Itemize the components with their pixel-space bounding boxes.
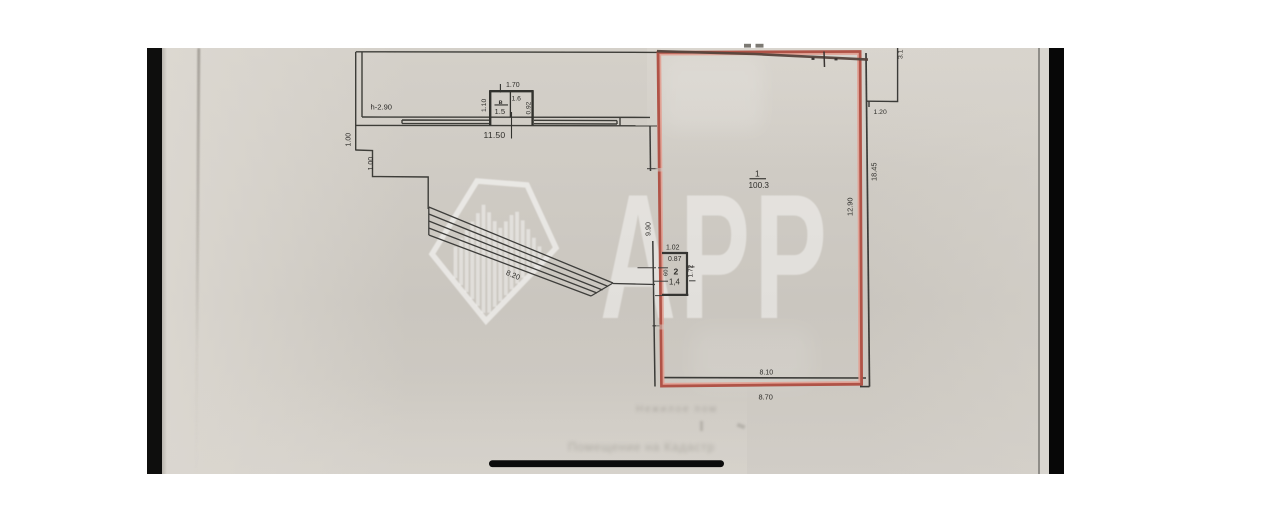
svg-text:100.3: 100.3 (749, 181, 770, 190)
svg-text:1.00: 1.00 (346, 133, 353, 147)
svg-text:1.20: 1.20 (874, 109, 887, 116)
svg-text:8.70: 8.70 (759, 392, 773, 401)
svg-text:1.02: 1.02 (666, 245, 680, 252)
svg-text:12.90: 12.90 (846, 198, 855, 217)
svg-text:1.00: 1.00 (368, 157, 375, 171)
svg-text:1.6: 1.6 (512, 95, 522, 102)
svg-text:Нежилое пом: Нежилое пом (636, 404, 716, 415)
svg-text:1: 1 (755, 169, 760, 179)
svg-text:8.10: 8.10 (760, 369, 774, 376)
svg-text:1.5: 1.5 (495, 107, 506, 116)
svg-text:0.87: 0.87 (668, 256, 682, 263)
svg-text:11.50: 11.50 (484, 130, 506, 140)
svg-text:А: А (600, 157, 676, 356)
svg-text:2: 2 (674, 267, 679, 277)
svg-text:60: 60 (664, 270, 670, 276)
svg-text:Помещение на Кадастр: Помещение на Кадастр (568, 440, 714, 454)
svg-text:1.72: 1.72 (688, 264, 695, 277)
svg-text:0.92: 0.92 (526, 101, 533, 114)
svg-text:1.10: 1.10 (481, 99, 488, 112)
svg-text:h-2.90: h-2.90 (371, 103, 393, 112)
svg-text:3.1: 3.1 (898, 49, 905, 59)
svg-text:18.45: 18.45 (870, 163, 879, 182)
svg-text:Р: Р (680, 157, 750, 356)
svg-text:1,4: 1,4 (669, 278, 681, 287)
svg-text:1.70: 1.70 (506, 82, 520, 89)
svg-text:9.90: 9.90 (644, 222, 653, 236)
